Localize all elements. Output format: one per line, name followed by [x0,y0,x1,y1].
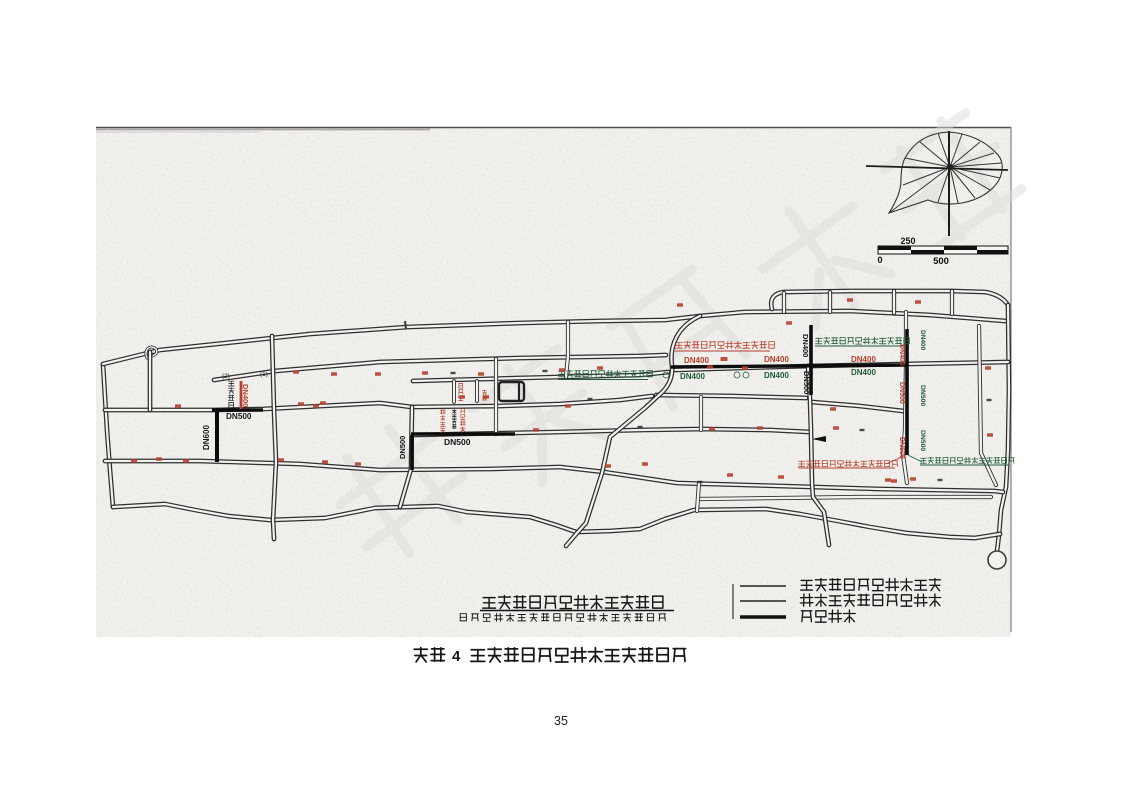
svg-text:DN400: DN400 [898,344,905,366]
svg-text:DN400: DN400 [684,356,709,365]
svg-text:(2): (2) [222,373,230,380]
svg-text:DN600: DN600 [202,425,211,450]
svg-text:DN400: DN400 [851,368,876,377]
svg-text:(1): (1) [260,371,268,378]
svg-text:DN500: DN500 [898,382,905,404]
svg-text:DN400: DN400 [919,330,926,351]
svg-text:DN500: DN500 [919,430,926,451]
svg-text:500: 500 [933,256,949,267]
svg-text:DN400: DN400 [241,384,250,407]
svg-text:35: 35 [554,714,568,728]
svg-text:DN400: DN400 [851,355,876,364]
svg-text:DN500: DN500 [898,437,905,459]
svg-text:0: 0 [877,255,882,265]
svg-text:DN400: DN400 [680,372,705,381]
svg-text:DN400: DN400 [764,355,789,364]
svg-text:DN500: DN500 [226,412,252,421]
svg-text:DN400: DN400 [764,371,789,380]
svg-text:DN500: DN500 [444,437,471,447]
svg-text:DN500: DN500 [398,436,407,459]
svg-text:DN500: DN500 [919,385,926,406]
svg-text:4: 4 [452,648,461,665]
svg-text:250: 250 [900,236,915,246]
svg-text:DN500: DN500 [802,371,811,394]
svg-text:DN400: DN400 [801,334,810,357]
